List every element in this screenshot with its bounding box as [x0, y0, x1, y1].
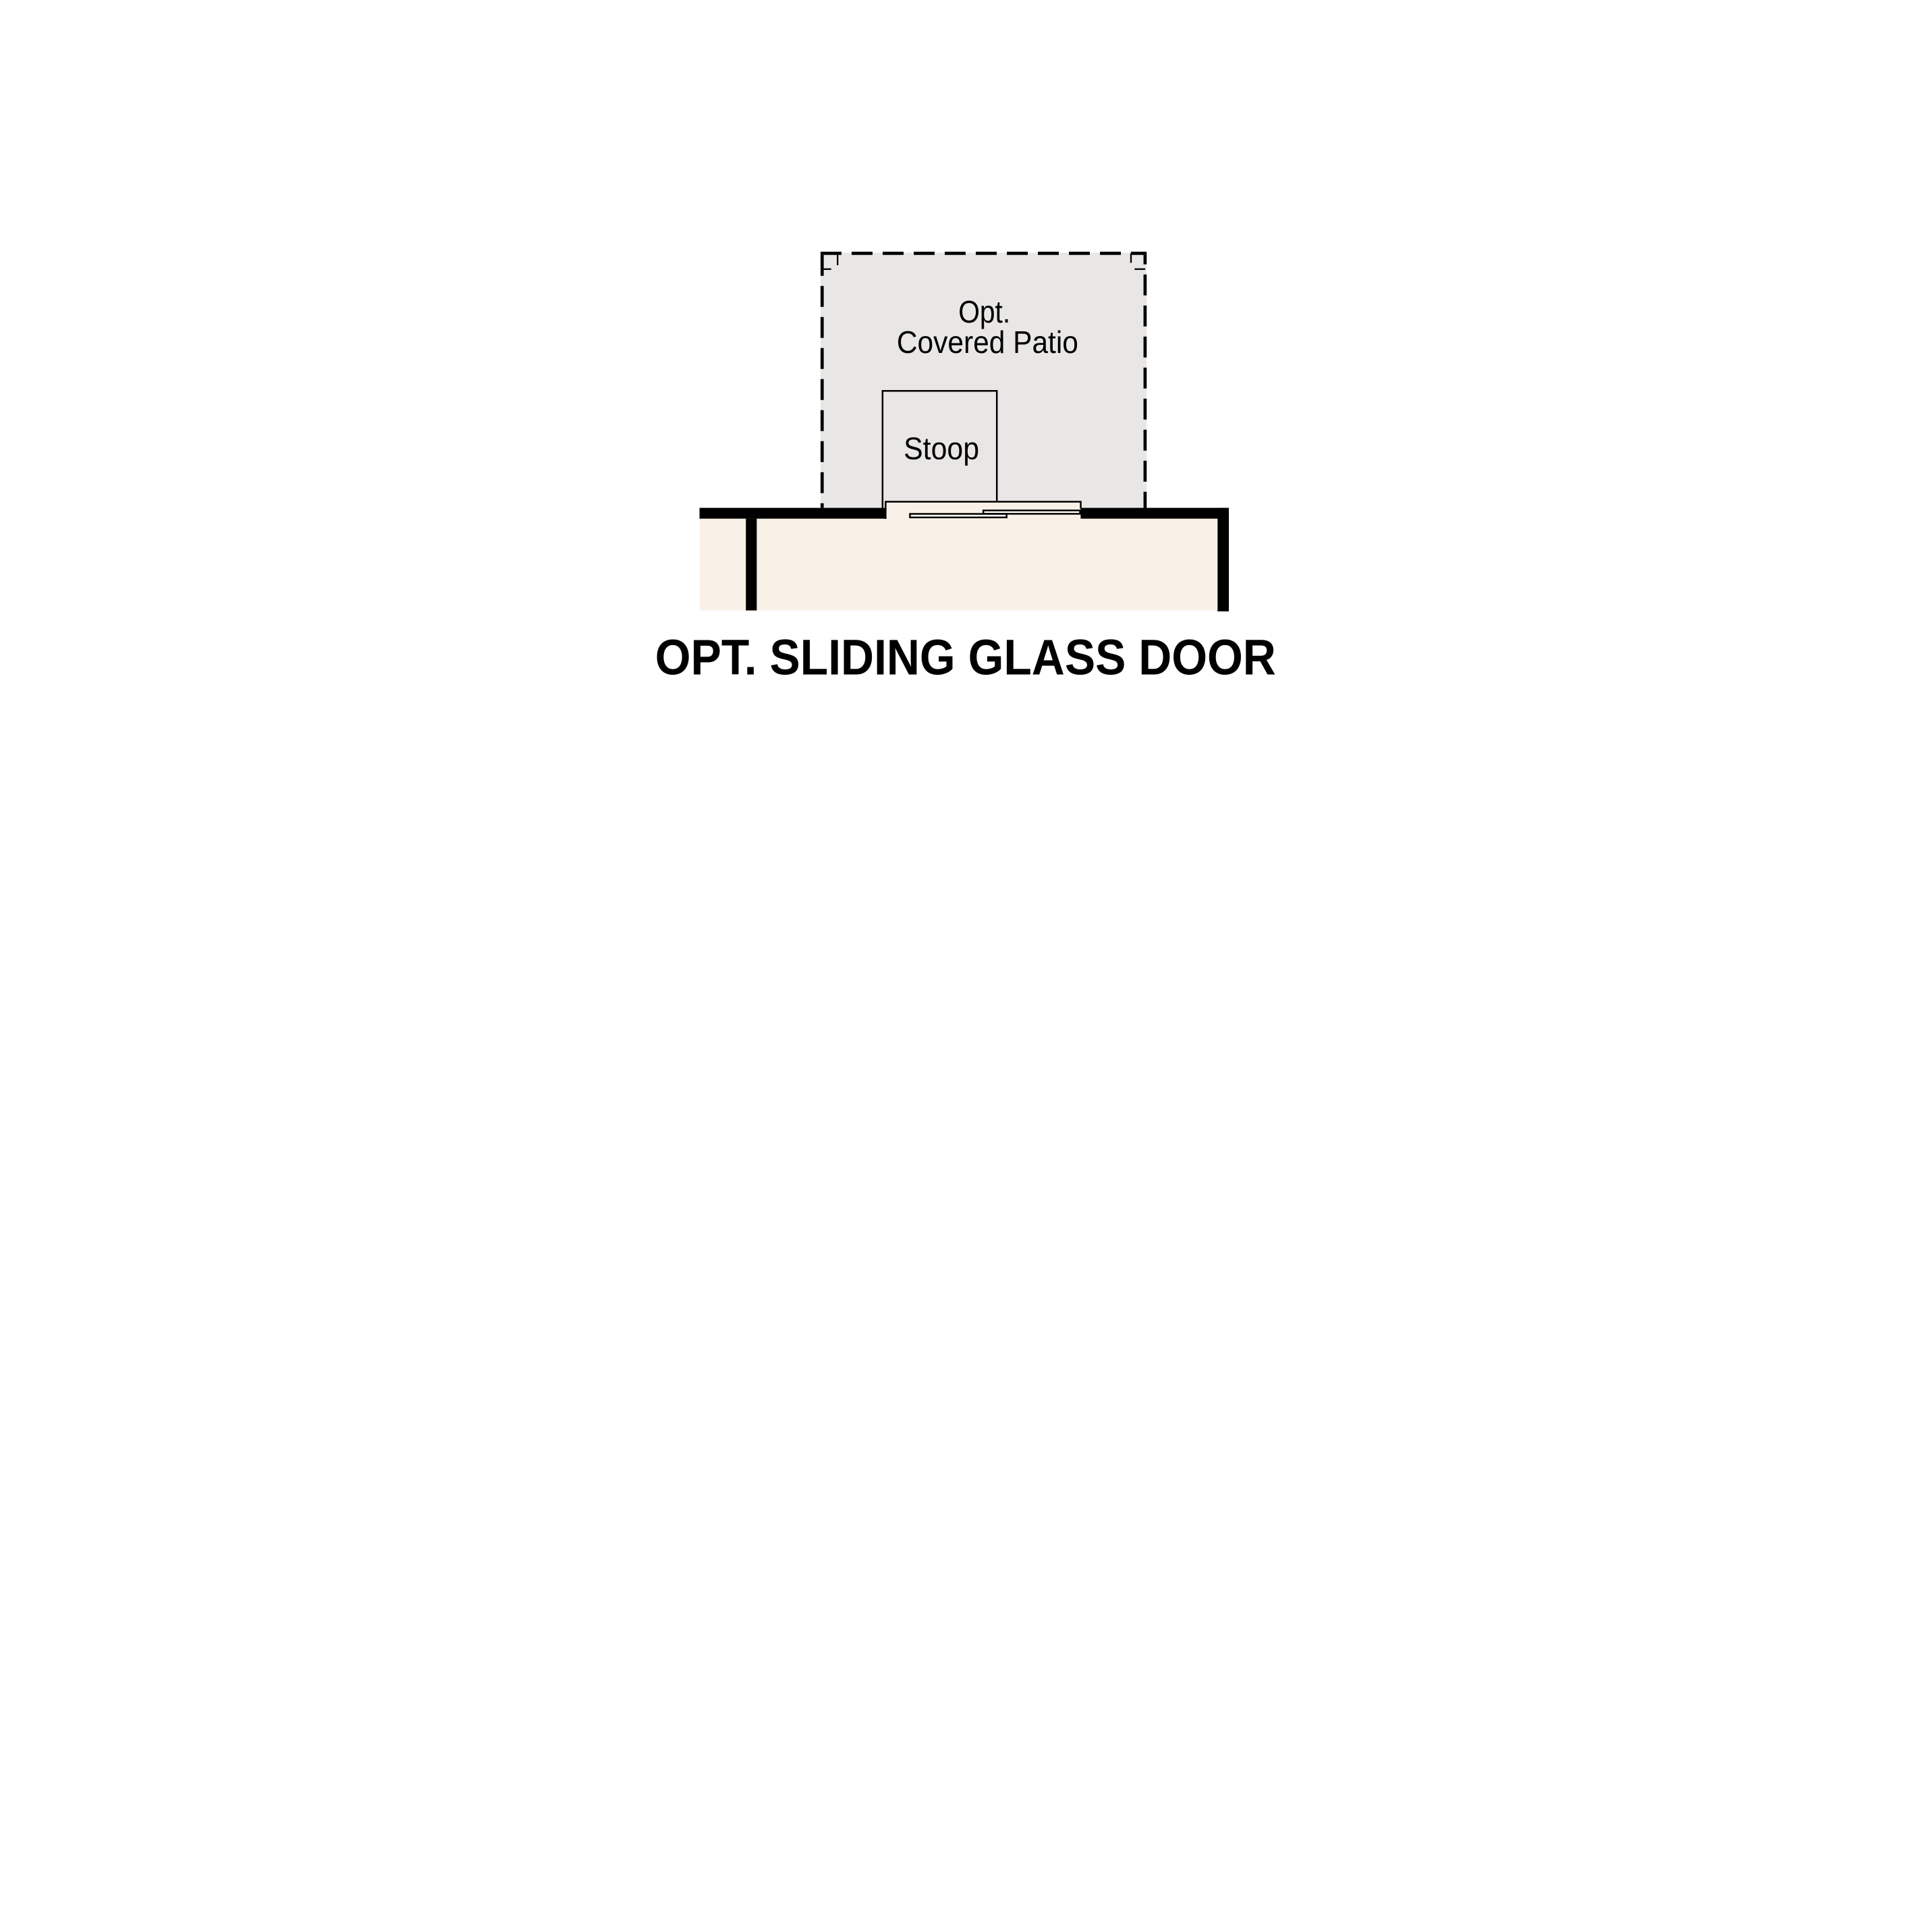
svg-text:OPT. SLIDING GLASS DOOR: OPT. SLIDING GLASS DOOR [655, 630, 1276, 686]
svg-text:Stoop: Stoop [904, 431, 979, 466]
svg-text:Covered Patio: Covered Patio [897, 325, 1078, 360]
